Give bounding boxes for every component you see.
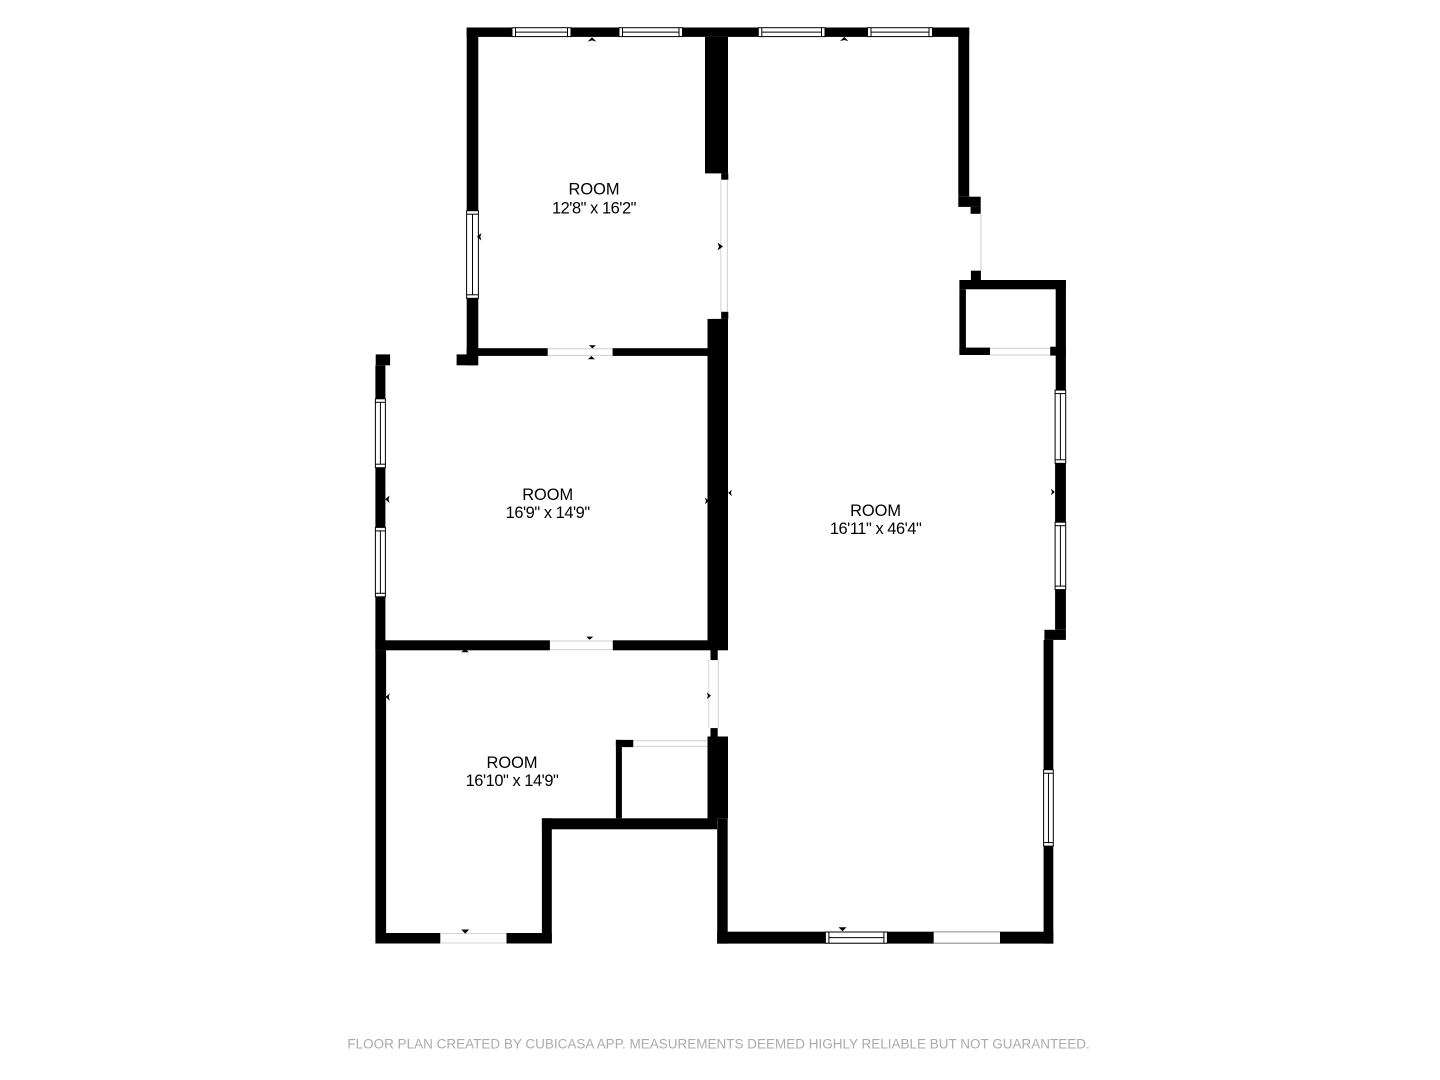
svg-text:ROOM: ROOM [522, 486, 573, 504]
svg-text:12'8" x 16'2": 12'8" x 16'2" [552, 199, 637, 217]
svg-text:ROOM: ROOM [569, 180, 620, 198]
svg-text:ROOM: ROOM [850, 502, 901, 520]
svg-text:ROOM: ROOM [487, 754, 538, 772]
svg-text:FLOOR PLAN CREATED BY CUBICASA: FLOOR PLAN CREATED BY CUBICASA APP. MEAS… [347, 1037, 1089, 1052]
svg-text:16'11" x 46'4": 16'11" x 46'4" [830, 520, 922, 538]
svg-text:16'10" x 14'9": 16'10" x 14'9" [466, 772, 559, 790]
svg-text:16'9" x 14'9": 16'9" x 14'9" [506, 504, 591, 522]
